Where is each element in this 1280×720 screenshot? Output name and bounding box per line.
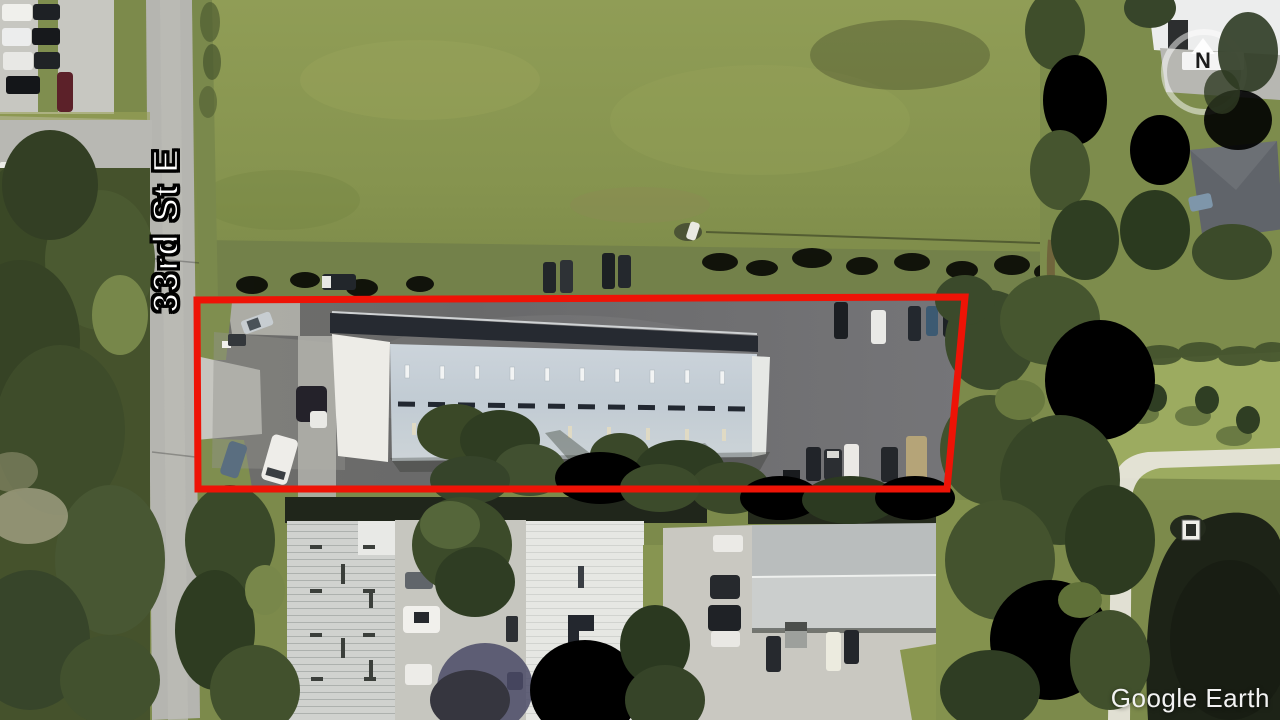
red-car xyxy=(57,72,73,112)
west-forest xyxy=(0,130,165,720)
pond-dock xyxy=(1170,515,1206,541)
aerial-imagery-canvas: 33rd St E N Google Earth xyxy=(0,0,1280,720)
aerial-scene xyxy=(0,0,1280,720)
warehouse-office-section xyxy=(332,334,390,462)
south-building-c xyxy=(752,523,940,633)
